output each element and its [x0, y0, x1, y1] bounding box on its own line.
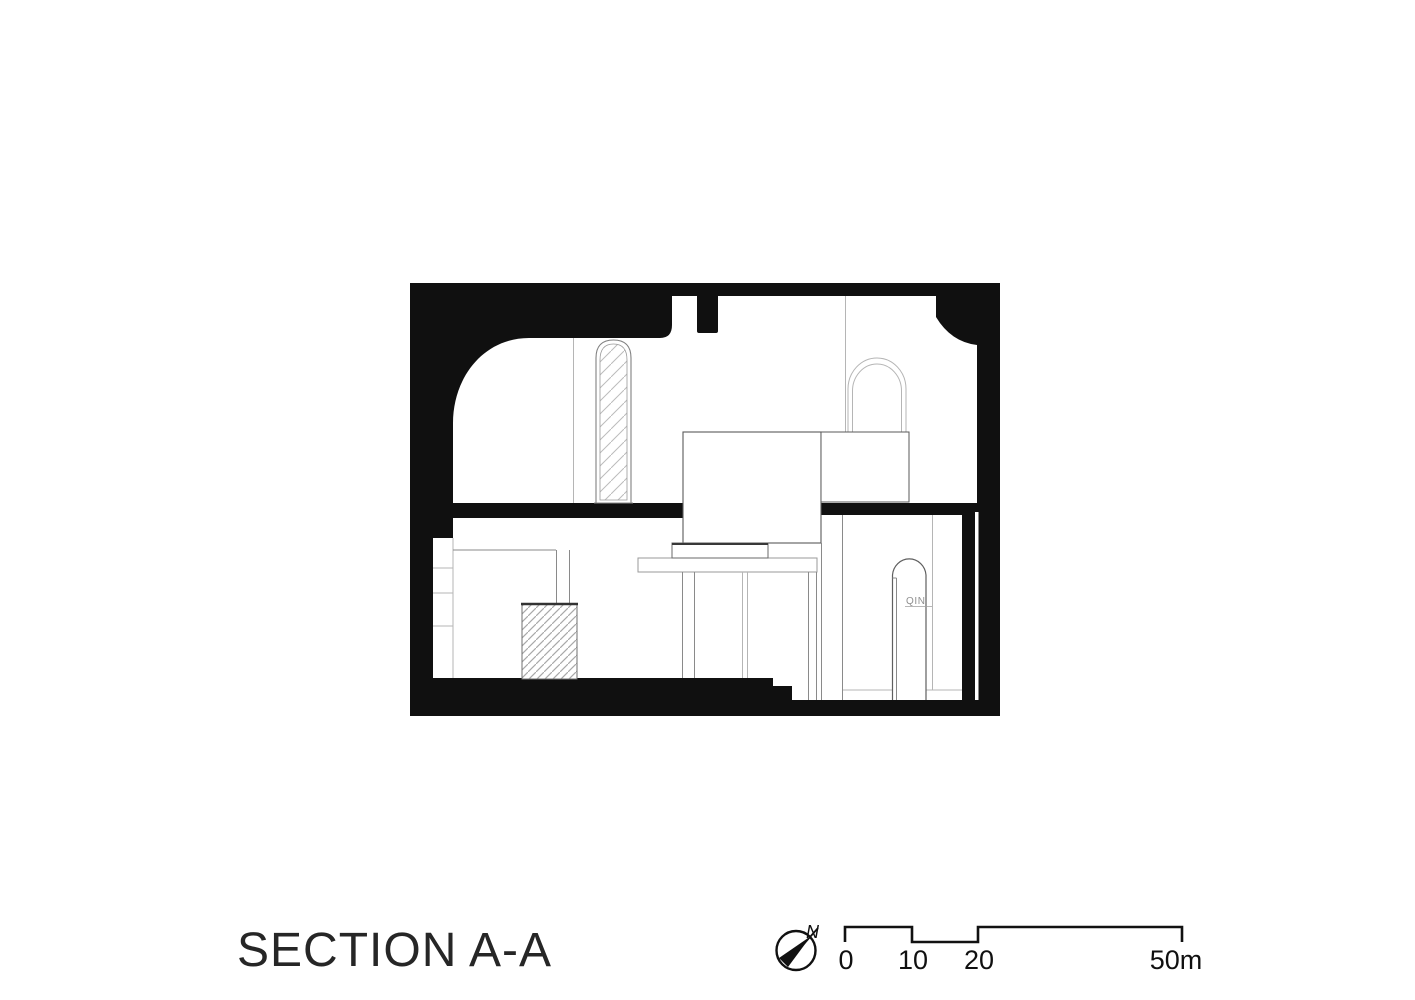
- section-drawing: QIN: [410, 283, 1000, 716]
- stage-volume-left: [683, 432, 821, 543]
- stage-volume-right: [821, 432, 909, 502]
- scale-bar: 0 10 20 50m: [838, 927, 1202, 975]
- door-pocket-slot: [975, 512, 979, 700]
- scale-tick-0: 0: [838, 945, 853, 975]
- north-label: N: [806, 922, 820, 942]
- scale-tick-10: 10: [898, 945, 928, 975]
- section-title: SECTION A-A: [237, 924, 552, 977]
- island-block-hatch: [522, 604, 577, 679]
- door-logo: QIN: [906, 596, 926, 607]
- scale-tick-50m: 50m: [1150, 945, 1203, 975]
- table-top: [672, 543, 768, 558]
- arched-door: [893, 559, 927, 700]
- scale-tick-20: 20: [964, 945, 994, 975]
- section-sheet-svg: QIN SECTION A-A N 0 10 20 50m: [0, 0, 1415, 1000]
- north-arrow-icon: N: [777, 922, 821, 970]
- mirror-hatch: [600, 344, 627, 500]
- mirror-panel: [594, 340, 633, 503]
- scale-bar-line: [845, 927, 1182, 942]
- long-shelf: [638, 558, 817, 572]
- wall-shelf-niche: [433, 538, 453, 678]
- drawing-sheet: QIN SECTION A-A N 0 10 20 50m: [0, 0, 1415, 1000]
